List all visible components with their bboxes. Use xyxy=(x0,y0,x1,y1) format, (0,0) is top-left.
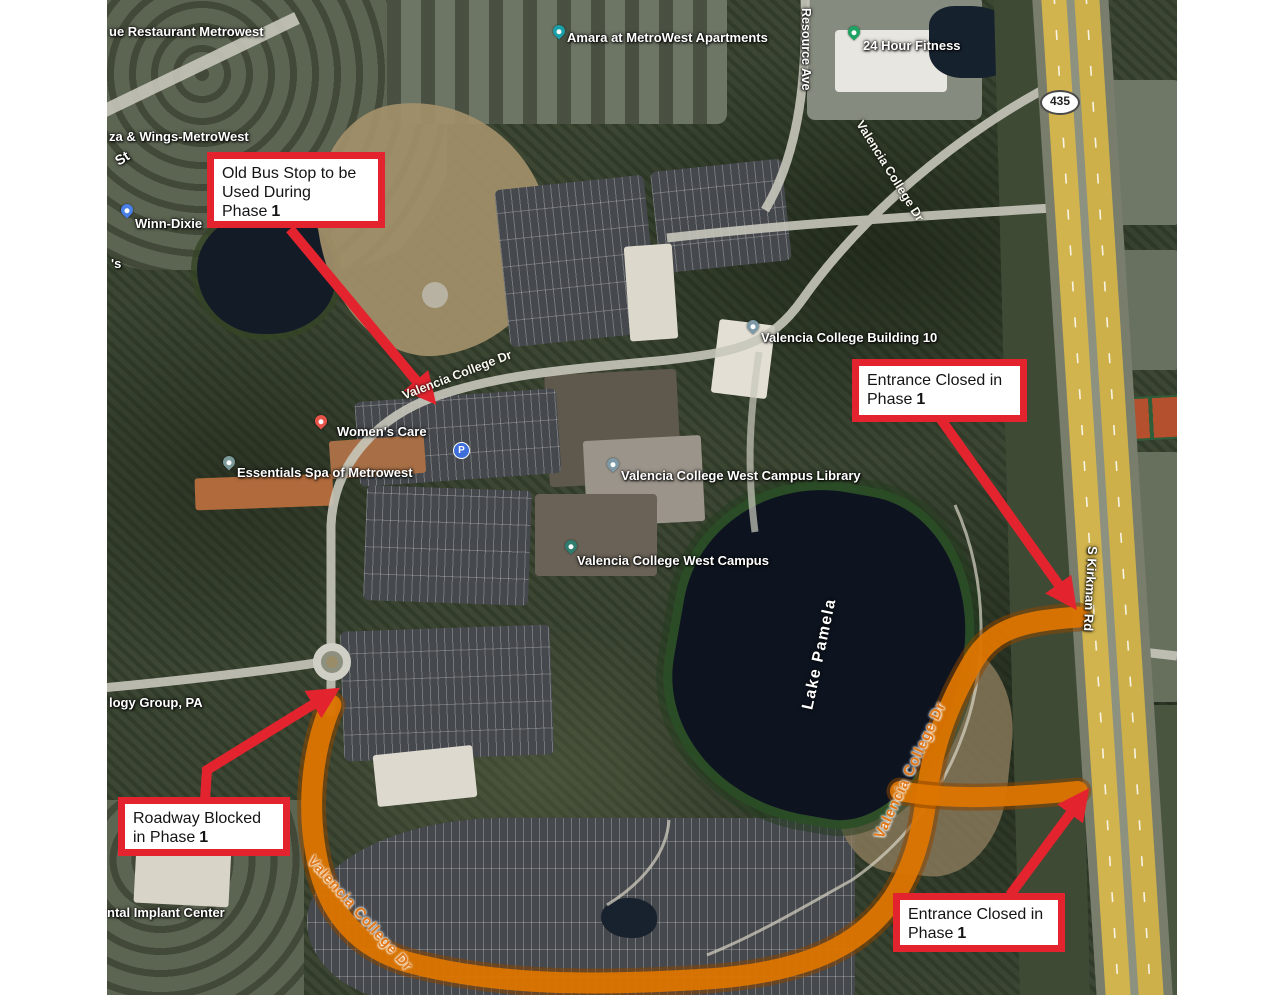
callout-roadway-blocked: Roadway Blocked in Phase1 xyxy=(118,797,290,856)
label-essentials-spa: Essentials Spa of Metrowest xyxy=(237,465,413,480)
callout-roadway-blocked-text: Roadway Blocked in Phase xyxy=(133,810,261,846)
parking-icon: P xyxy=(453,442,470,459)
label-resource-ave: Resource Ave xyxy=(799,8,813,90)
callout-entrance-closed-top: Entrance Closed in Phase1 xyxy=(852,359,1027,422)
label-pizza-wings: za & Wings-MetroWest xyxy=(109,129,249,144)
callout-roadway-blocked-number: 1 xyxy=(199,829,208,846)
callout-old-bus-stop: Old Bus Stop to be Used During Phase1 xyxy=(207,152,385,228)
arrow-entrance-closed-top xyxy=(940,418,1061,588)
label-implant-center: ntal Implant Center xyxy=(107,905,225,920)
callout-old-bus-stop-text: Old Bus Stop to be Used During Phase xyxy=(222,165,356,220)
label-west-campus: Valencia College West Campus xyxy=(577,553,769,568)
road-campus-inner xyxy=(750,352,759,532)
label-building-10: Valencia College Building 10 xyxy=(761,330,937,345)
callout-entrance-closed-top-text: Entrance Closed in Phase xyxy=(867,372,1002,408)
road-network xyxy=(107,0,1177,716)
label-womens-care: Women's Care xyxy=(337,424,427,439)
callout-entrance-closed-bottom-text: Entrance Closed in Phase xyxy=(908,906,1043,942)
label-partial-s: 's xyxy=(111,256,121,271)
label-24-hour-fitness: 24 Hour Fitness xyxy=(863,38,961,53)
satellite-map: P ue Restaurant Metrowest St za & Wings-… xyxy=(107,0,1177,995)
label-winn-dixie: Winn-Dixie xyxy=(135,216,202,231)
label-library: Valencia College West Campus Library xyxy=(621,468,861,483)
roundabout-island xyxy=(326,656,338,668)
road-west-of-roundabout xyxy=(107,663,316,688)
route-435-shield: 435 xyxy=(1040,90,1080,115)
label-restaurant-metrowest: ue Restaurant Metrowest xyxy=(109,24,264,39)
callout-old-bus-stop-number: 1 xyxy=(271,203,280,220)
annotated-map-page: P ue Restaurant Metrowest St za & Wings-… xyxy=(0,0,1287,995)
callout-entrance-closed-top-number: 1 xyxy=(916,391,925,408)
arrow-entrance-closed-bottom xyxy=(1010,810,1073,895)
arrow-old-bus-stop xyxy=(290,229,419,384)
label-amara-apartments: Amara at MetroWest Apartments xyxy=(567,30,768,45)
callout-entrance-closed-bottom: Entrance Closed in Phase1 xyxy=(893,893,1065,952)
callout-entrance-closed-bottom-number: 1 xyxy=(957,925,966,942)
highway-s-kirkman-rd xyxy=(1054,0,1151,995)
label-group-pa: logy Group, PA xyxy=(109,695,203,710)
